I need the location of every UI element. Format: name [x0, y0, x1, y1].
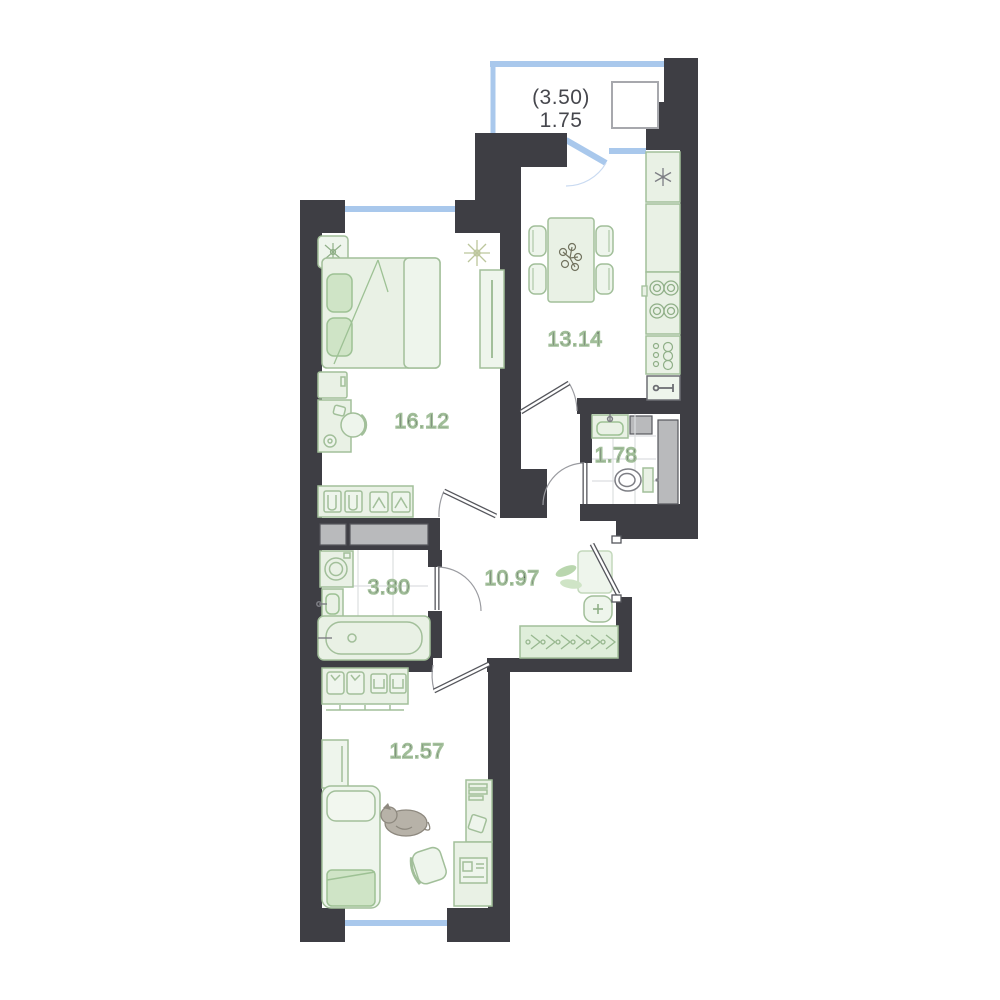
bedroom: 16.12 [318, 236, 504, 517]
bedroom-area: 16.12 [394, 410, 449, 433]
chair [596, 264, 613, 294]
wall-segment [455, 200, 505, 233]
bathroom-door [437, 567, 481, 611]
wall-segment [580, 414, 592, 463]
tall-cabinet [322, 740, 348, 788]
kitchen-area: 13.14 [547, 328, 602, 351]
dog-icon [381, 803, 430, 836]
wall-segment [580, 504, 692, 521]
chair [529, 226, 546, 256]
shaft [630, 416, 652, 434]
wc-area: 1.78 [595, 444, 638, 467]
shirt-icon [327, 672, 344, 694]
kitchen: 13.14 [529, 152, 680, 400]
shaft [658, 420, 678, 504]
cooktop [646, 272, 680, 334]
toilet-tank [643, 468, 653, 492]
balcony: (3.50) 1.75 [532, 82, 658, 132]
floor-plan-svg: (3.50) 1.75 [0, 0, 1000, 1000]
basket [370, 492, 388, 512]
bed2-pillow [327, 791, 375, 821]
flower-decor-icon [464, 240, 490, 266]
computer-icon [460, 858, 487, 883]
leaf-decor [554, 563, 578, 580]
shoe-box [324, 491, 341, 512]
desk-lamp-center [328, 439, 332, 443]
shaft [350, 524, 428, 545]
hallway-area: 10.97 [484, 567, 539, 590]
shaft [320, 524, 346, 545]
wc-door [543, 463, 585, 505]
balcony-storage-box [612, 82, 658, 128]
office-chair [408, 846, 449, 887]
shirt-icon [347, 672, 364, 694]
bathroom: 3.80 [317, 551, 430, 660]
basket [392, 492, 410, 512]
chair [596, 226, 613, 256]
desk-paper [333, 405, 346, 416]
door-jamb [612, 595, 621, 602]
bed-footboard [404, 258, 440, 368]
wall-segment [300, 908, 345, 942]
toilet-button [655, 478, 658, 481]
wall-segment [680, 150, 698, 539]
floor-plan-canvas: (3.50) 1.75 [0, 0, 1000, 1000]
bedroom-door [439, 491, 496, 517]
bedroom2-door [432, 664, 489, 691]
wall-segment [500, 469, 547, 518]
balcony-door-leaf [566, 140, 606, 163]
wall-segment [664, 58, 698, 106]
door-jamb [612, 536, 621, 543]
hallway: 10.97 [484, 551, 618, 658]
kitchen-door [521, 383, 577, 412]
wall-segment [616, 521, 692, 539]
wall-segment [475, 133, 567, 167]
wall-segment [300, 200, 322, 940]
wall-segment [428, 550, 442, 567]
shoe-box [345, 491, 362, 512]
bathroom-area: 3.80 [368, 576, 411, 599]
balcony-area-total: (3.50) [532, 86, 590, 109]
wall-segment [487, 658, 632, 672]
wall-segment [447, 908, 510, 942]
bedroom2-area: 12.57 [389, 740, 444, 763]
bedroom2: 12.57 [322, 668, 492, 908]
balcony-area: 1.75 [540, 109, 583, 132]
kitchen-counter [646, 204, 680, 272]
chair [529, 264, 546, 294]
pillow [327, 274, 352, 312]
nightstand-handle [341, 377, 345, 386]
